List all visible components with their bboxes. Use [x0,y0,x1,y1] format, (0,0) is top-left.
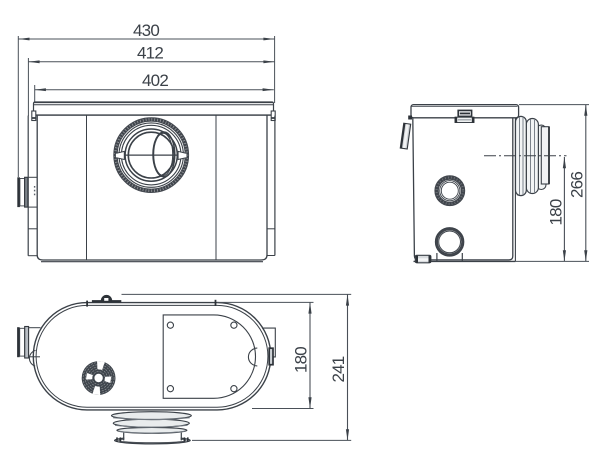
svg-text:412: 412 [137,44,163,63]
svg-text:402: 402 [142,71,168,90]
svg-text:180: 180 [547,199,566,225]
svg-text:180: 180 [292,347,311,373]
svg-text:241: 241 [329,356,348,382]
svg-text:430: 430 [133,21,159,40]
svg-text:266: 266 [568,172,587,198]
